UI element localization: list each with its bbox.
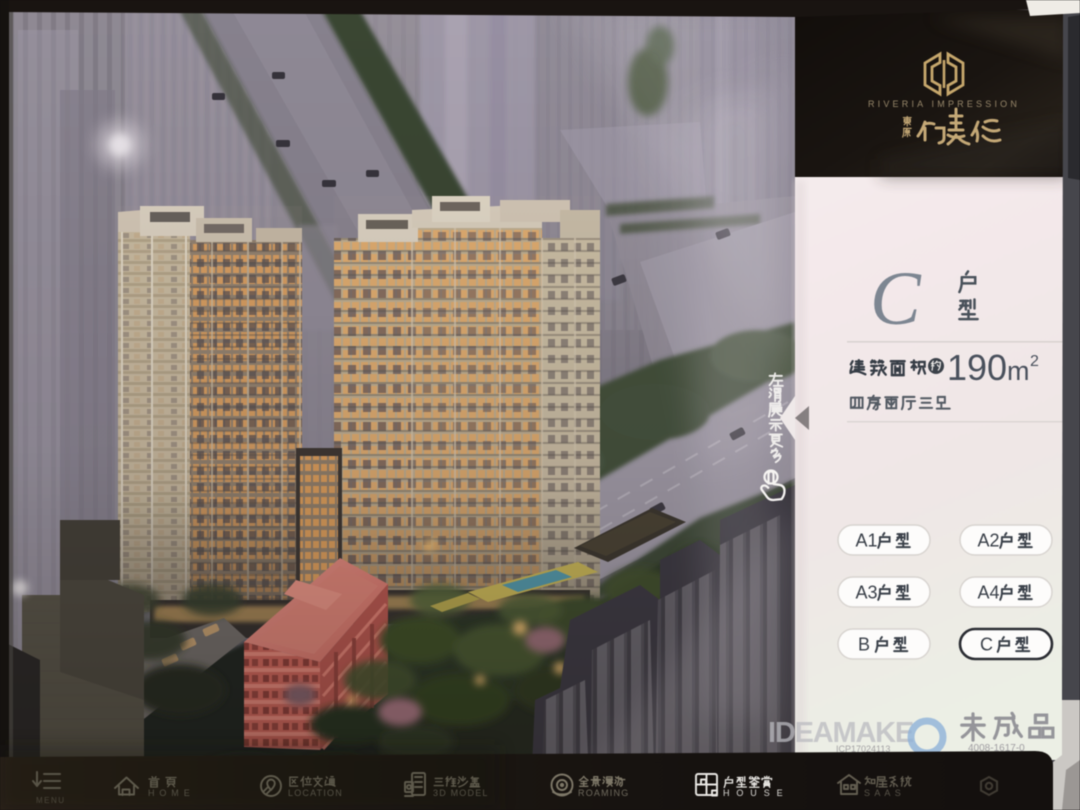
svg-text:B: B [858, 635, 870, 655]
svg-text:S A A S: S A A S [864, 788, 902, 798]
svg-text:ROAMING: ROAMING [578, 788, 629, 798]
svg-text:A3: A3 [856, 583, 878, 603]
svg-text:H O U S E: H O U S E [723, 788, 785, 798]
svg-text:RIVERIA IMPRESSION: RIVERIA IMPRESSION [868, 99, 1020, 109]
svg-text:2: 2 [1030, 353, 1039, 370]
svg-text:C: C [980, 635, 993, 655]
svg-text:A1: A1 [856, 531, 878, 551]
svg-text:190: 190 [947, 347, 1007, 388]
svg-text:m: m [1007, 356, 1030, 386]
svg-text:A2: A2 [978, 531, 1000, 551]
svg-text:A4: A4 [978, 583, 1000, 603]
svg-text:C: C [870, 257, 922, 341]
